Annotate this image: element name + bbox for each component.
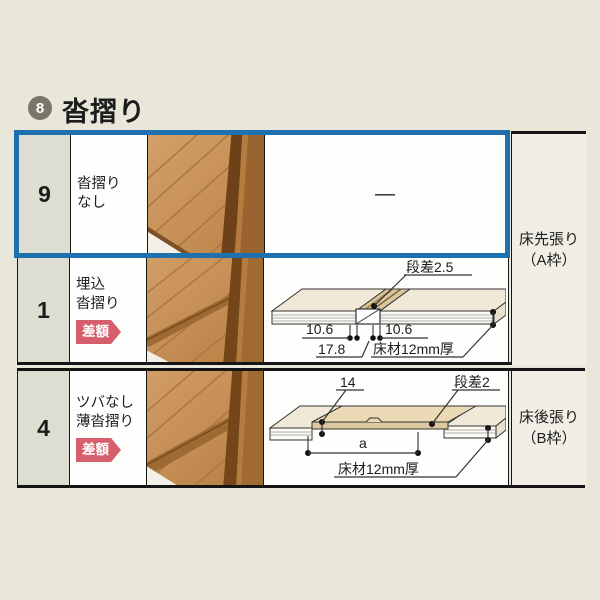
dim-material: 床材12mm厚 bbox=[373, 341, 454, 357]
frame-type-a-line2: （A枠） bbox=[521, 250, 576, 271]
frame-type-b-label: 床後張り （B枠） bbox=[511, 371, 586, 485]
floor-photo bbox=[147, 258, 264, 362]
embedded-sill-diagram: 段差2.5 10.6 10.6 17.8 床材12mm厚 bbox=[266, 259, 506, 361]
diagram-cell: 14 段差2 a 床材12mm厚 bbox=[264, 371, 508, 485]
no-diagram-dash: — bbox=[375, 183, 395, 206]
page-title: 沓摺り bbox=[62, 90, 146, 129]
price-difference-badge: 差額 bbox=[76, 320, 121, 344]
frame-type-b-line1: 床後張り bbox=[519, 407, 579, 428]
option-label-line1: 沓摺り bbox=[77, 175, 141, 194]
dim-width: 17.8 bbox=[318, 341, 345, 357]
option-number: 1 bbox=[18, 258, 70, 362]
option-label-line2: 沓摺り bbox=[76, 295, 140, 314]
option-label-line2: なし bbox=[77, 194, 141, 213]
option-label-line2: 薄沓摺り bbox=[76, 413, 140, 432]
floor-photo-image bbox=[148, 135, 264, 253]
section-number-icon: 8 bbox=[28, 96, 52, 120]
option-row-1[interactable]: 1 埋込 沓摺り 差額 bbox=[17, 258, 509, 363]
option-label: 沓摺り なし bbox=[71, 135, 148, 253]
floor-photo bbox=[148, 135, 265, 253]
diagram-cell: — bbox=[265, 135, 505, 253]
dim-material: 床材12mm厚 bbox=[338, 461, 419, 477]
option-row-4[interactable]: 4 ツバなし 薄沓摺り 差額 bbox=[17, 371, 509, 485]
frame-type-a-label: 床先張り （A枠） bbox=[511, 131, 586, 365]
thin-sill-diagram: 14 段差2 a 床材12mm厚 bbox=[266, 374, 506, 482]
option-label-line1: 埋込 bbox=[76, 276, 140, 295]
dim-span: a bbox=[359, 435, 367, 451]
diagram-cell: 段差2.5 10.6 10.6 17.8 床材12mm厚 bbox=[264, 258, 508, 362]
frame-type-b-line2: （B枠） bbox=[521, 428, 576, 449]
floor-photo-image bbox=[147, 371, 263, 485]
option-number: 9 bbox=[19, 135, 71, 253]
option-label: ツバなし 薄沓摺り 差額 bbox=[70, 371, 147, 485]
floor-photo-image bbox=[147, 258, 263, 362]
option-label: 埋込 沓摺り 差額 bbox=[70, 258, 147, 362]
dim-step: 段差2.5 bbox=[406, 259, 454, 275]
option-number: 4 bbox=[18, 371, 70, 485]
table-bottom-border bbox=[17, 485, 585, 488]
floor-photo bbox=[147, 371, 264, 485]
section-number: 8 bbox=[36, 100, 44, 117]
dim-lip: 14 bbox=[340, 374, 356, 390]
price-difference-badge: 差額 bbox=[76, 438, 121, 462]
frame-type-a-line1: 床先張り bbox=[519, 229, 579, 250]
dim-left: 10.6 bbox=[306, 321, 333, 337]
option-row-9[interactable]: 9 沓摺り なし bbox=[19, 135, 505, 253]
selected-option-highlight: 9 沓摺り なし bbox=[14, 130, 510, 258]
option-label-line1: ツバなし bbox=[76, 394, 140, 413]
section-divider-line bbox=[17, 362, 585, 365]
dim-step: 段差2 bbox=[454, 374, 490, 390]
dim-right: 10.6 bbox=[385, 321, 412, 337]
